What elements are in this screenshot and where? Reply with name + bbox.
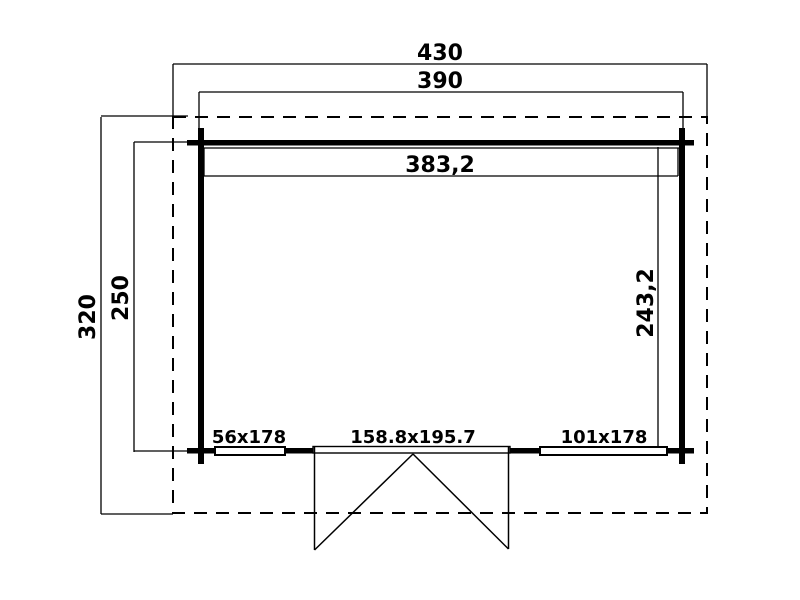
wall-bottom-right-stub — [667, 448, 694, 454]
wall-right — [679, 128, 685, 464]
right-window-symbol — [540, 447, 667, 455]
wall-bottom-segment-left — [285, 448, 313, 454]
left-window-label: 56x178 — [212, 427, 286, 448]
door-swing-right — [413, 454, 509, 549]
wall-left — [198, 128, 204, 464]
door-swing-left — [315, 454, 414, 550]
wall-top — [187, 140, 694, 146]
dim-label-wall-width: 390 — [417, 69, 463, 94]
dim-label-inner-width: 383,2 — [405, 153, 475, 178]
wall-bottom-left-stub — [187, 448, 215, 454]
dim-label-inner-depth: 243,2 — [634, 268, 659, 338]
dim-label-wall-depth: 250 — [109, 275, 134, 321]
floor-plan-page: 430 390 383,2 320 250 243,2 56x178 158.8… — [0, 0, 800, 600]
floor-plan-canvas: 430 390 383,2 320 250 243,2 56x178 158.8… — [0, 0, 800, 600]
right-window-label: 101x178 — [561, 427, 648, 448]
door-label: 158.8x195.7 — [350, 427, 475, 448]
dim-label-roof-depth: 320 — [76, 294, 101, 340]
left-window-symbol — [215, 447, 285, 455]
wall-bottom-segment-right — [510, 448, 540, 454]
dim-label-roof-width: 430 — [417, 41, 463, 66]
